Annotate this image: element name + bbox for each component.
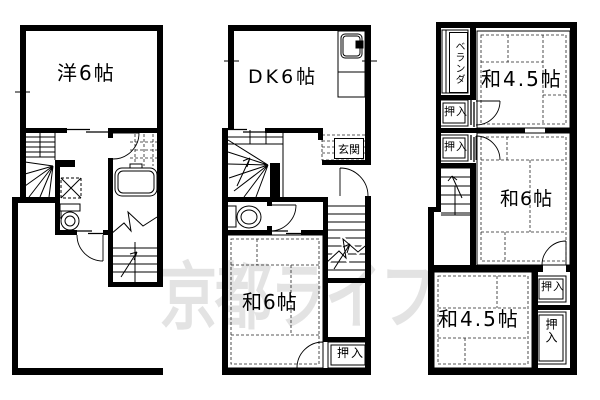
floor1-lower-stairs-icon [111, 212, 157, 282]
floor3-tatami-mid-label: 和6帖 [500, 190, 553, 209]
floor1-western-room-label: 洋6帖 [57, 63, 116, 83]
floor3-tatami-top-label: 和4.5帖 [481, 69, 563, 89]
floor3-stairs-icon [441, 168, 470, 215]
floor2-closet-label: 押入 [337, 347, 365, 359]
floor3-closet-right-bottom-label: 押入 [545, 318, 557, 344]
floorplan-canvas: 京都ライフ [0, 0, 600, 400]
floor3-door-arc-icon [476, 101, 566, 265]
floor2-dk-label: DK6帖 [248, 68, 318, 87]
floor3-closet-left-top-label: 押入 [444, 106, 468, 117]
floor1-stairs-icon [25, 133, 55, 197]
floor1-bathtub-icon [115, 164, 157, 196]
floor2-lower-stairs-icon [326, 206, 370, 270]
floor2-tatami-label: 和6帖 [242, 292, 298, 312]
floor1-washing-machine-icon [61, 178, 81, 198]
floor2-entrance-label: 玄関 [334, 138, 364, 159]
floor3-tatami-bottom-label: 和4.5帖 [438, 309, 520, 329]
floor3-closet-left-mid-label: 押入 [444, 141, 468, 152]
floor2-toilet-icon [226, 206, 261, 228]
floor3-veranda-label: ベランダ [449, 32, 468, 93]
floor3-closet-right-top-label: 押入 [541, 281, 565, 292]
floor1-bath-tile [130, 134, 157, 166]
floor2-kitchen-sink-icon [338, 31, 365, 97]
